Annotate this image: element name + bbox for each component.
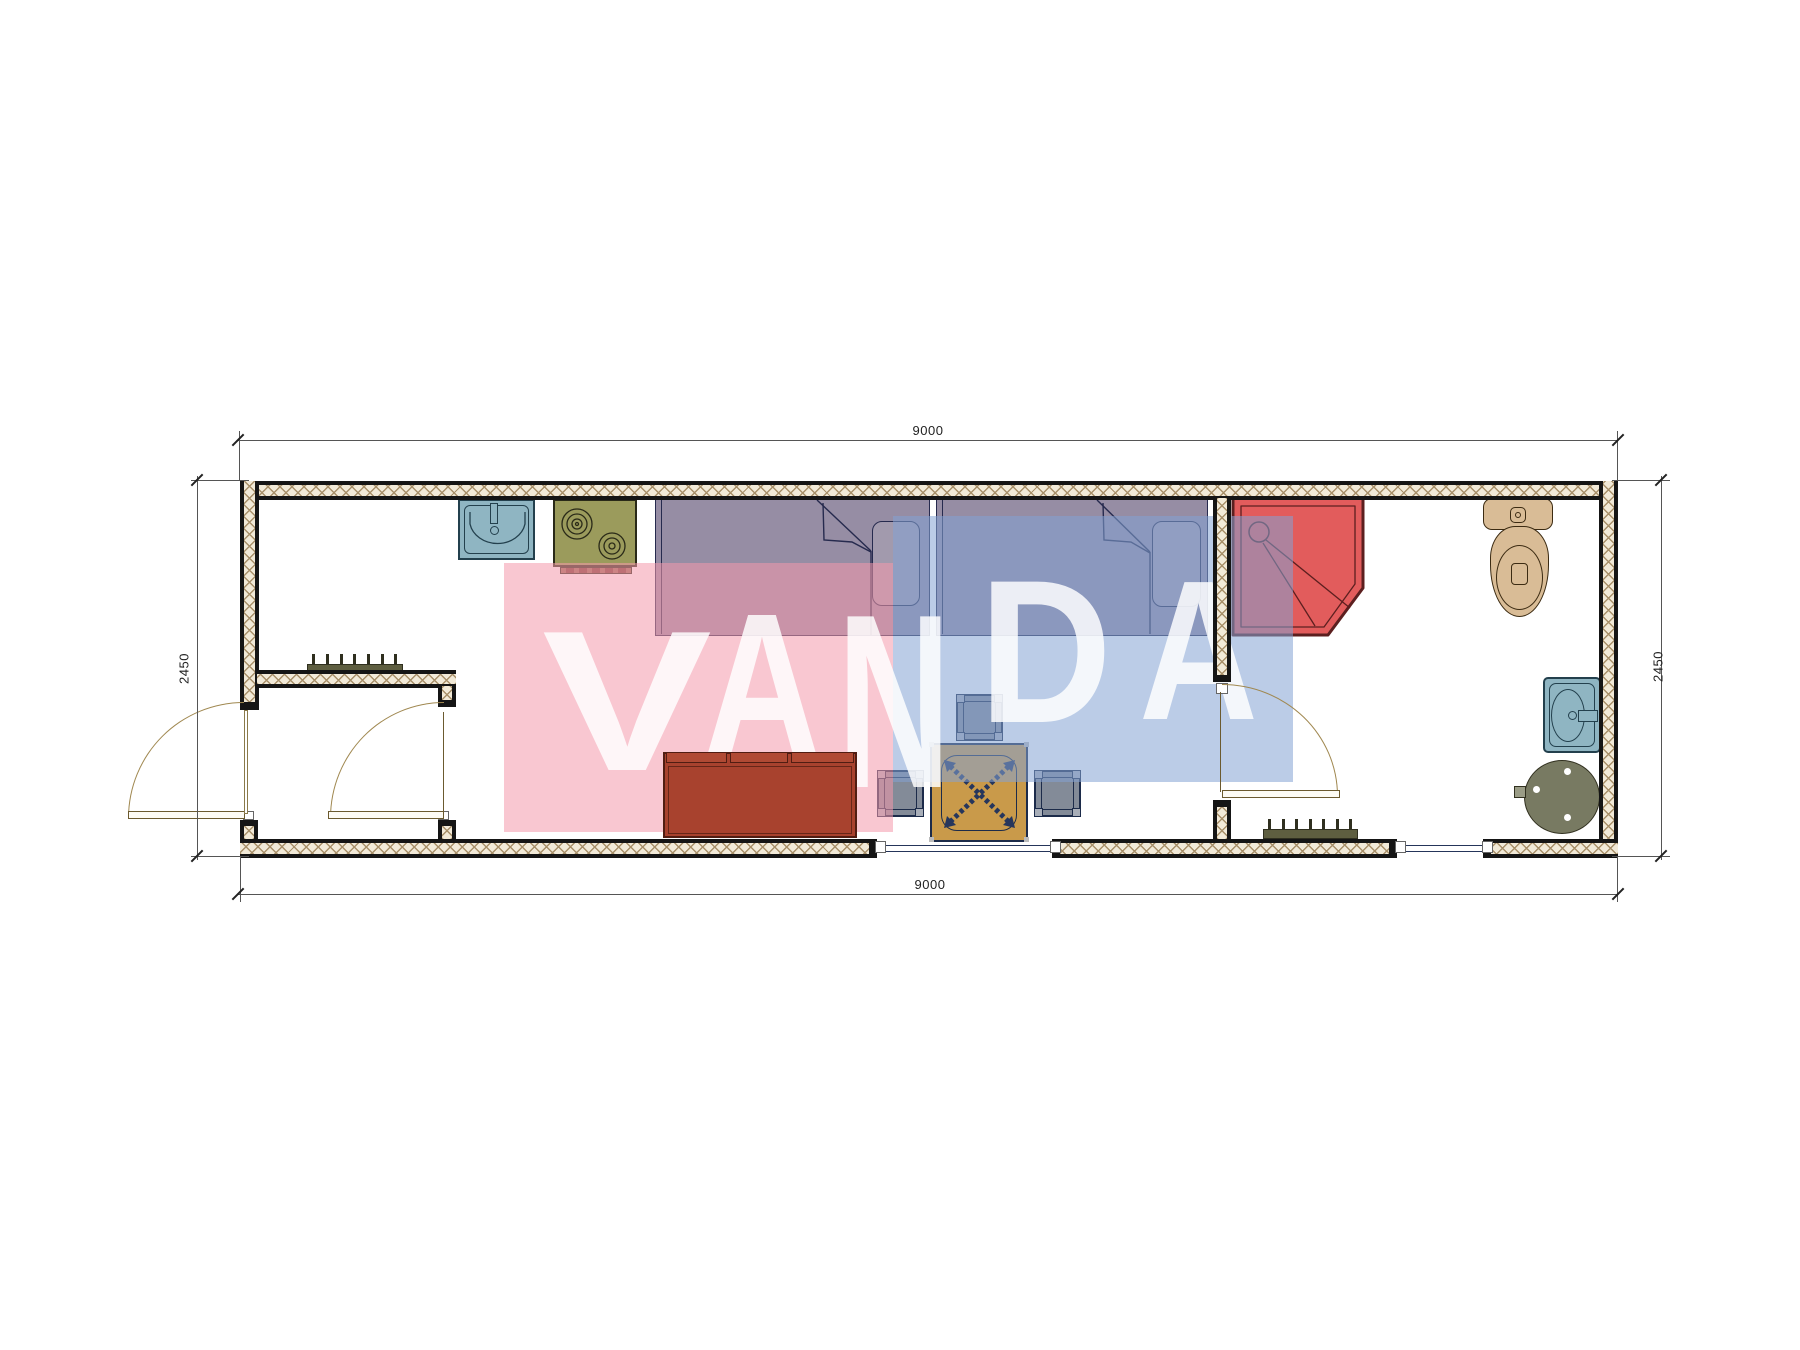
bathroom-door-closed-line: [1220, 692, 1223, 792]
wall-stub-cap: [1213, 800, 1231, 807]
wall-bathroom-partition: [1213, 498, 1231, 682]
extension-line: [240, 856, 241, 902]
sofa-back-cushion: [666, 752, 727, 763]
wall-top: [240, 481, 1618, 500]
window-bathroom: [1406, 845, 1484, 852]
vestibule-door-closed-line: [443, 712, 446, 812]
wall-stub-cap: [438, 820, 456, 826]
dimension-label-bottom: 9000: [880, 877, 980, 892]
window-jamb: [1482, 841, 1493, 853]
sofa-seat-line: [668, 766, 852, 834]
window-jamb: [1395, 841, 1406, 853]
entry-door-frame: [244, 710, 248, 814]
wall-bottom-left: [240, 839, 877, 858]
window-jamb: [1050, 841, 1061, 853]
dimension-label-left: 2450: [177, 639, 192, 699]
window-jamb: [875, 841, 886, 853]
wall-vestibule: [257, 670, 456, 688]
dimension-label-right: 2450: [1651, 637, 1666, 697]
wall-bottom-middle: [1052, 839, 1397, 858]
entry-door-leaf: [128, 811, 245, 819]
wall-bottom-right: [1483, 839, 1618, 858]
dimension-line-left: [197, 476, 198, 860]
sofa-back-cushion: [730, 752, 788, 763]
wall-stub-cap: [1213, 675, 1231, 682]
watermark-letter: D: [979, 538, 1112, 766]
dimension-label-top: 9000: [878, 423, 978, 438]
dimension-line-bottom: [238, 894, 1618, 895]
wall-stub-cap: [240, 820, 258, 826]
extension-line: [191, 856, 249, 857]
window-living: [886, 845, 1051, 852]
dimension-line-top: [238, 440, 1618, 441]
vestibule-door-leaf: [328, 811, 444, 819]
sofa-back-cushion: [791, 752, 854, 763]
floor-plan-canvas: V A N D A: [0, 0, 1800, 1350]
wall-right: [1599, 481, 1618, 858]
bathroom-door-leaf: [1222, 790, 1340, 798]
extension-line: [191, 480, 249, 481]
